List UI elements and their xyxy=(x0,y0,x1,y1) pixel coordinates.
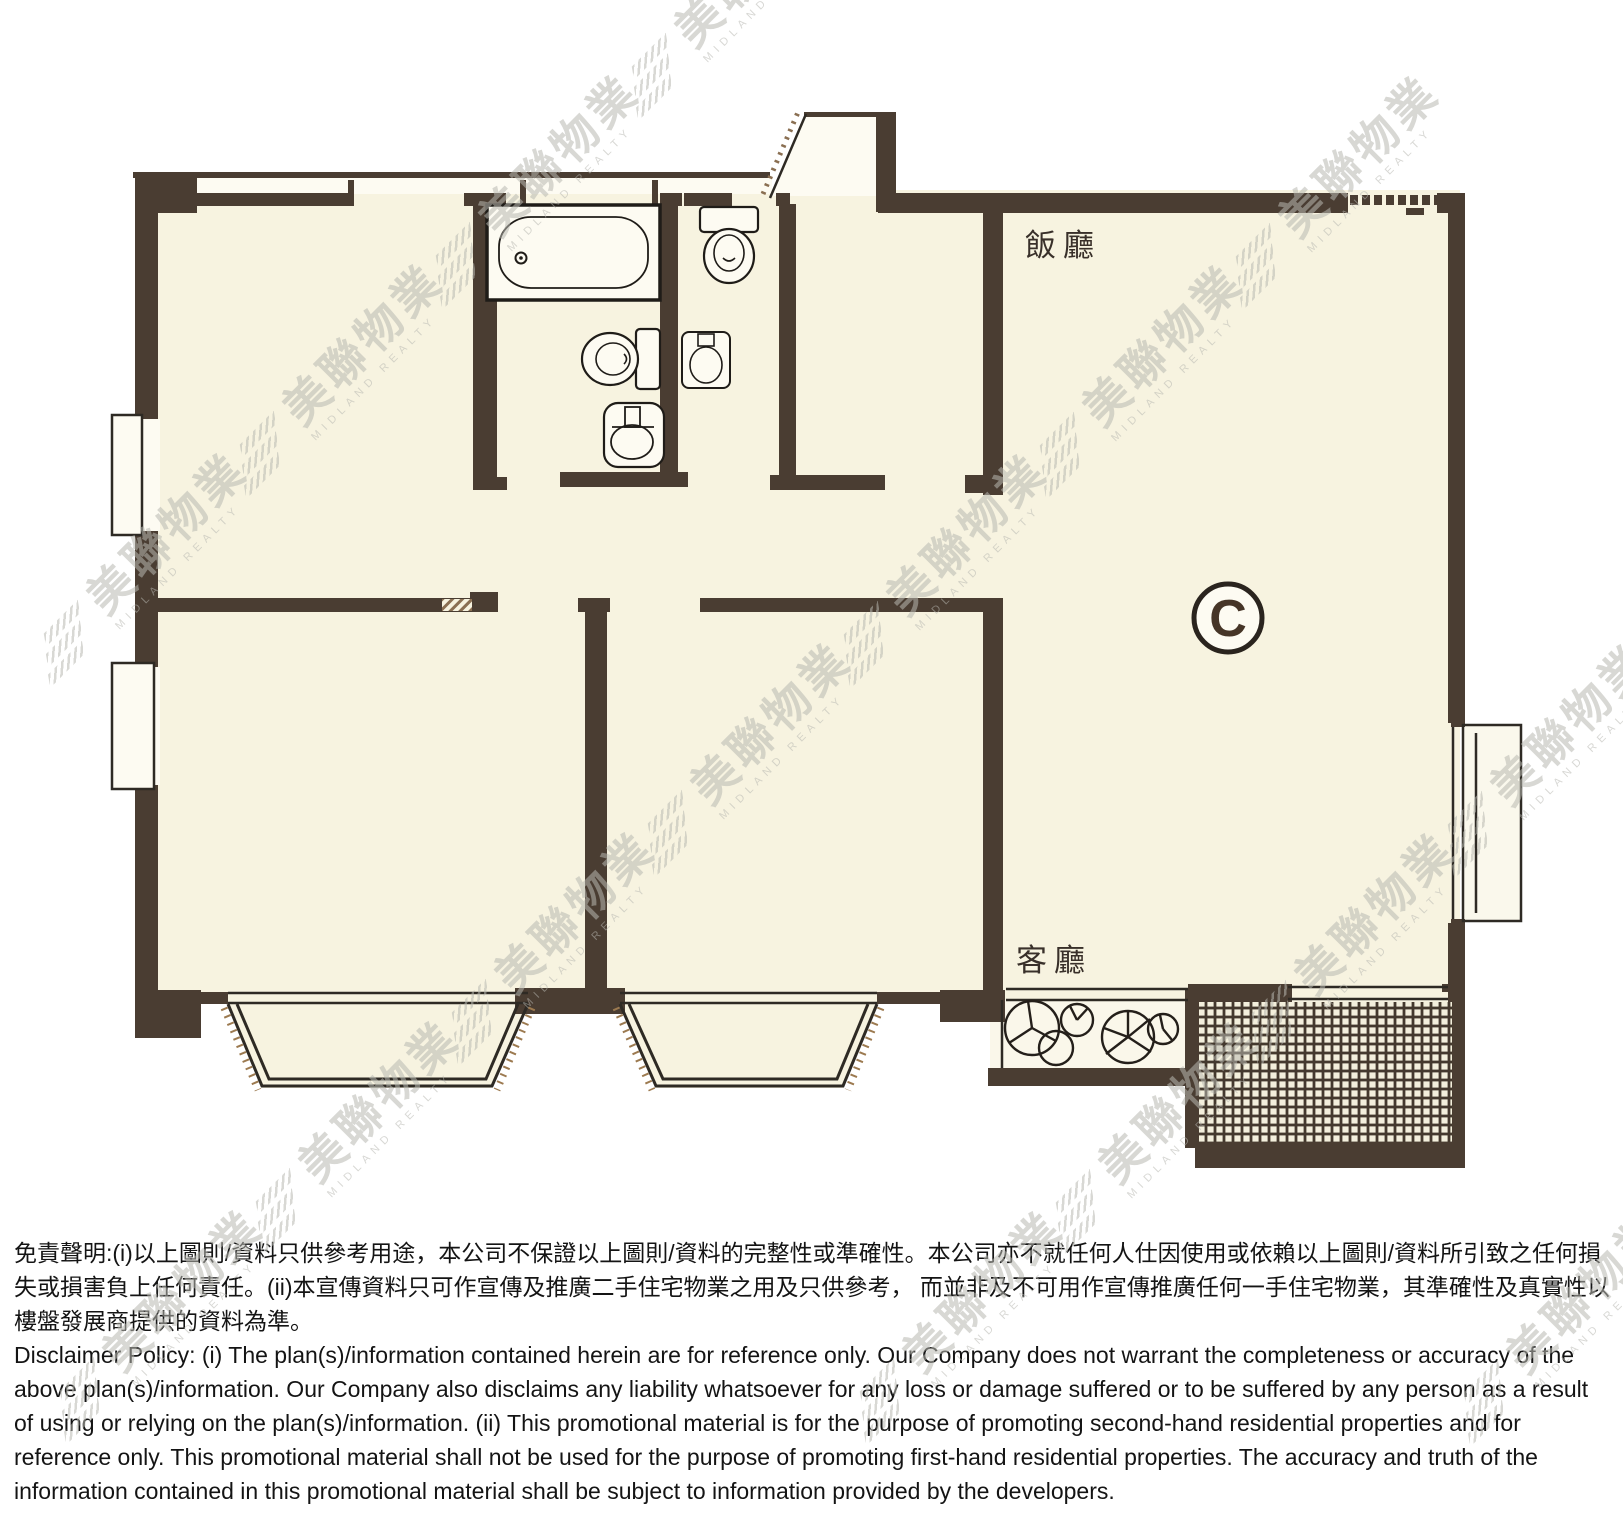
disclaimer-text-en: Disclaimer Policy: (i) The plan(s)/infor… xyxy=(14,1338,1612,1508)
unit-marker-letter: C xyxy=(1209,590,1247,648)
floor-plan-image: C 飯廳 客廳 xyxy=(0,0,1623,1237)
room-label-dining: 飯廳 xyxy=(1025,228,1101,263)
sink-icon xyxy=(682,332,730,388)
sink-icon xyxy=(604,403,664,467)
toilet-icon xyxy=(582,329,660,389)
bathtub-icon xyxy=(487,205,660,300)
balcony-tiles xyxy=(1199,1002,1452,1142)
disclaimer-text-zh: 免責聲明:(i)以上圖則/資料只供參考用途，本公司不保證以上圖則/資料的完整性或… xyxy=(14,1236,1612,1338)
disclaimer: 免責聲明:(i)以上圖則/資料只供參考用途，本公司不保證以上圖則/資料的完整性或… xyxy=(14,1236,1612,1508)
floor-plan: C 飯廳 客廳 xyxy=(0,0,1623,1237)
room-label-living: 客廳 xyxy=(1016,943,1092,978)
door-threshold xyxy=(442,599,472,611)
unit-marker: C xyxy=(1194,584,1262,652)
toilet-icon xyxy=(700,207,758,283)
